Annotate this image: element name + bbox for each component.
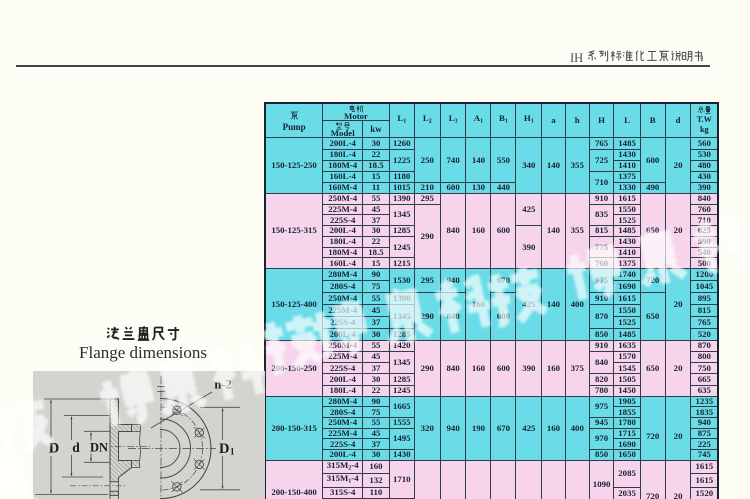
svg-text:d: d — [72, 440, 80, 455]
svg-text:D: D — [49, 441, 59, 457]
svg-text:DN: DN — [90, 441, 108, 455]
svg-text:n-2: n-2 — [214, 378, 231, 392]
svg-text:D: D — [219, 441, 229, 457]
svg-text:1: 1 — [230, 447, 235, 457]
